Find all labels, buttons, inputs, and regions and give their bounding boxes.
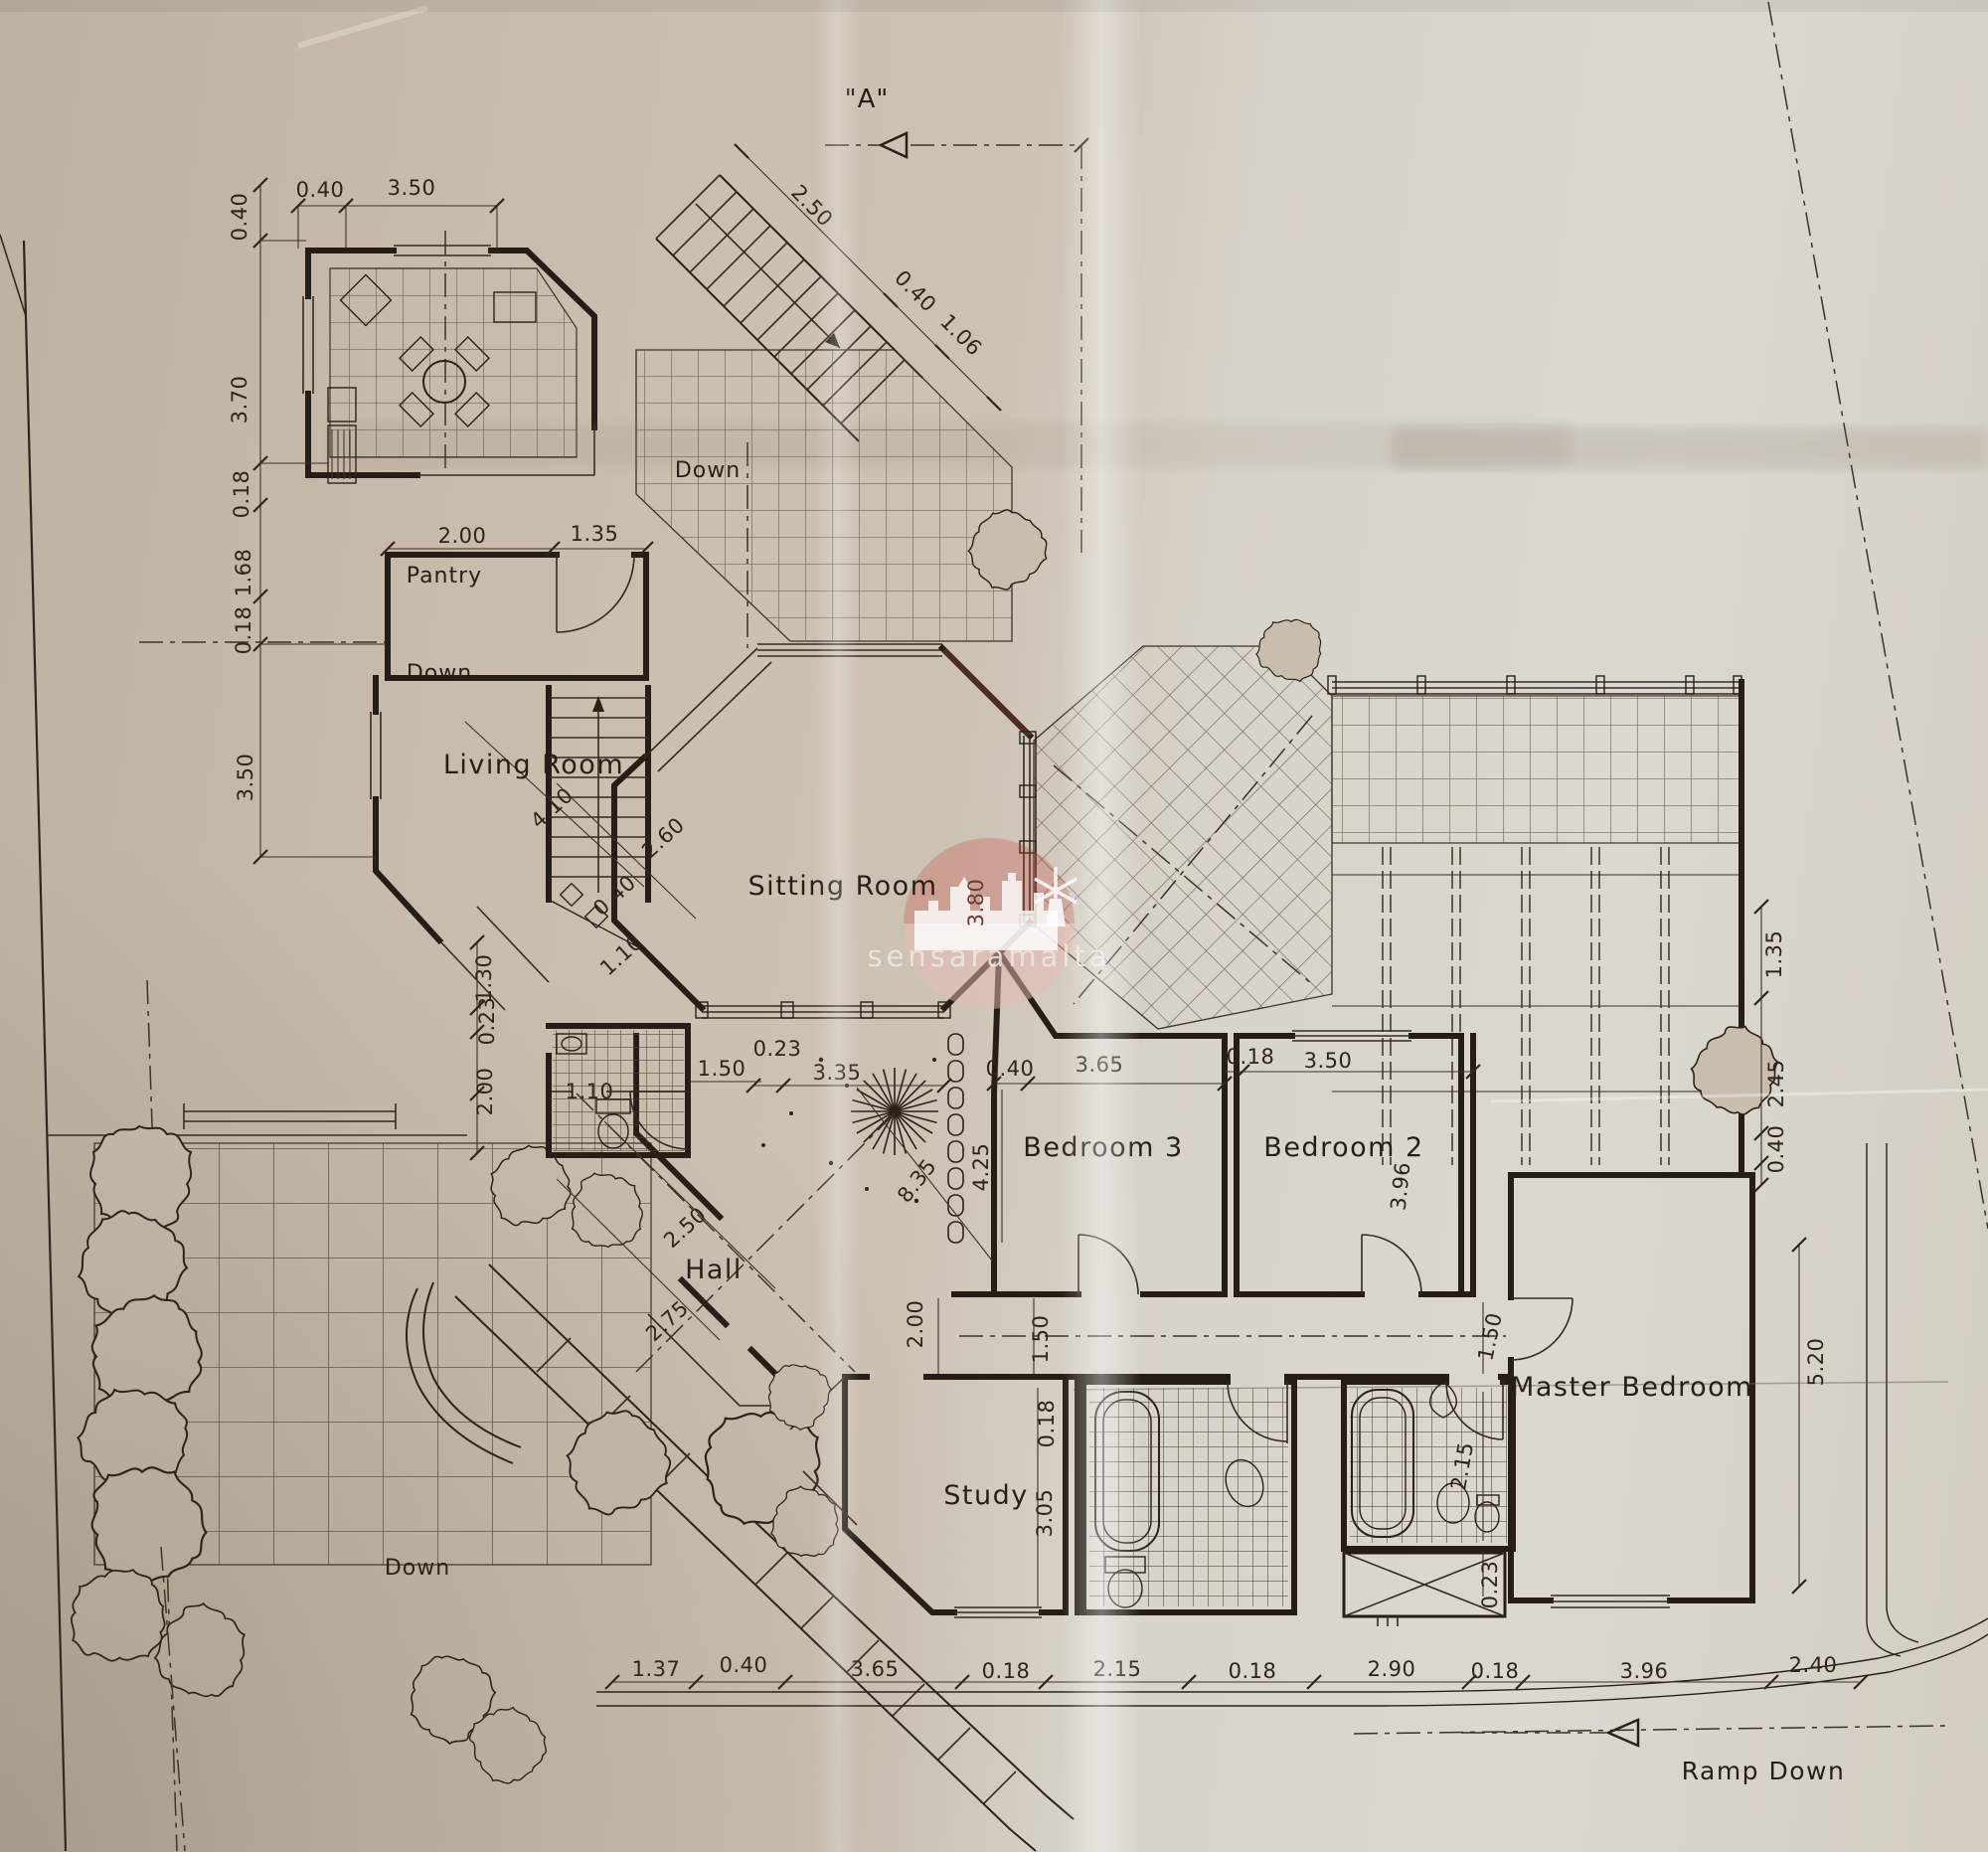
dim: 1.68	[232, 549, 255, 597]
curved-glass-wall	[948, 1034, 963, 1243]
dim: 3.05	[1033, 1489, 1057, 1538]
pergola-terrace	[1328, 676, 1793, 1173]
label-down-top: Down	[675, 458, 741, 483]
kitchen-window-top	[394, 246, 491, 255]
dim: 3.96	[1620, 1659, 1669, 1683]
dim: 4.25	[969, 1143, 993, 1192]
label-ramp-down: Ramp Down	[1682, 1757, 1846, 1785]
dim: 0.40	[890, 265, 940, 316]
dim: 3.50	[388, 176, 436, 200]
dim: 3.96	[1387, 1161, 1415, 1212]
red-pen-line	[944, 650, 1030, 736]
bedroom3-door-arc	[1078, 1235, 1138, 1294]
dim: 3.50	[1304, 1049, 1353, 1073]
dim: 0.18	[982, 1659, 1031, 1683]
dim: 0.18	[230, 470, 253, 519]
dim: 2.40	[1789, 1653, 1838, 1677]
pantry-door-arc	[557, 555, 634, 632]
dim: 2.00	[473, 1068, 497, 1116]
dim: 1.35	[1762, 930, 1786, 979]
dim: 3.50	[234, 754, 257, 802]
section-a-label: "A"	[845, 84, 890, 114]
dim: 0.40	[228, 193, 251, 242]
section-arrow-icon	[881, 133, 907, 157]
dim: 1.50	[1473, 1310, 1507, 1363]
kitchen	[303, 231, 594, 483]
dim: 3.65	[851, 1657, 900, 1681]
label-living-room: Living Room	[443, 750, 624, 780]
dim: 1.10	[566, 1080, 614, 1103]
dim: 0.40	[720, 1653, 768, 1677]
label-bedroom2: Bedroom 2	[1263, 1132, 1423, 1163]
pantry-room	[139, 555, 646, 678]
dim: 0.23	[475, 997, 499, 1046]
sitting-south-window	[696, 1002, 950, 1018]
dim: 3.80	[964, 879, 988, 927]
bedroom2-door-arc	[1362, 1235, 1421, 1294]
study-window	[954, 1607, 1042, 1617]
dim: 0.18	[1471, 1659, 1520, 1683]
label-master-bedroom: Master Bedroom	[1511, 1372, 1753, 1403]
dim: 2.90	[1368, 1657, 1416, 1681]
dim: 0.40	[296, 178, 345, 202]
dim: 4.10	[526, 783, 578, 833]
floor-plan-drawing: "A" sensaramalta Pantry Living Room Sitt…	[0, 0, 1988, 1852]
dim: 0.40	[1764, 1125, 1788, 1174]
label-down-terrace: Down	[385, 1556, 450, 1581]
master-window	[1551, 1596, 1670, 1607]
dim: 0.18	[232, 606, 255, 655]
courtyard-plant	[851, 1068, 938, 1155]
dim: 5.20	[1804, 1338, 1828, 1387]
kitchen-window-left	[303, 296, 313, 394]
dim: 2.45	[1764, 1060, 1788, 1108]
dim: 1.30	[472, 954, 496, 1003]
corridor	[845, 1294, 1511, 1377]
dim: 1.50	[1029, 1315, 1053, 1364]
label-hall: Hall	[685, 1255, 743, 1285]
dim: 2.50	[659, 1203, 711, 1253]
label-sitting-room: Sitting Room	[747, 871, 937, 902]
garden-terrace	[48, 1103, 1074, 1851]
dim: 0.23	[1478, 1561, 1502, 1609]
label-bedroom3: Bedroom 3	[1023, 1132, 1183, 1163]
photographed-floor-plan: "A" sensaramalta Pantry Living Room Sitt…	[0, 0, 1988, 1852]
sitting-north-window	[757, 644, 942, 656]
bathroom-1	[1083, 1382, 1294, 1612]
dim: 3.35	[813, 1061, 862, 1085]
dim: 2.15	[1093, 1657, 1142, 1681]
label-study: Study	[943, 1480, 1028, 1511]
ramp-arrow-icon	[1608, 1720, 1638, 1746]
dim: 1.50	[698, 1057, 746, 1081]
master-door-arc	[1511, 1298, 1573, 1360]
dim: 3.65	[1076, 1053, 1124, 1077]
dim: 3.70	[228, 376, 251, 424]
dim: 0.40	[986, 1057, 1035, 1081]
dim: 0.18	[1035, 1400, 1059, 1448]
dim: 0.18	[1229, 1659, 1277, 1683]
bathroom-2	[1344, 1382, 1513, 1549]
bedroom2-window	[1292, 1031, 1411, 1041]
dim: 2.00	[904, 1300, 927, 1349]
dim: 1.37	[632, 1657, 681, 1681]
dim: 8.35	[893, 1154, 941, 1207]
label-pantry: Pantry	[407, 564, 482, 589]
dim: 1.35	[571, 522, 619, 546]
dim: 2.00	[438, 524, 487, 548]
roof-terrace	[636, 350, 1059, 648]
watermark-text: sensaramalta	[867, 939, 1110, 973]
terrace-railing	[1328, 676, 1741, 694]
dim: 2.50	[786, 180, 837, 231]
dim: 0.18	[1227, 1045, 1275, 1069]
label-down-inner: Down	[407, 661, 472, 686]
dim: 0.23	[753, 1037, 802, 1061]
